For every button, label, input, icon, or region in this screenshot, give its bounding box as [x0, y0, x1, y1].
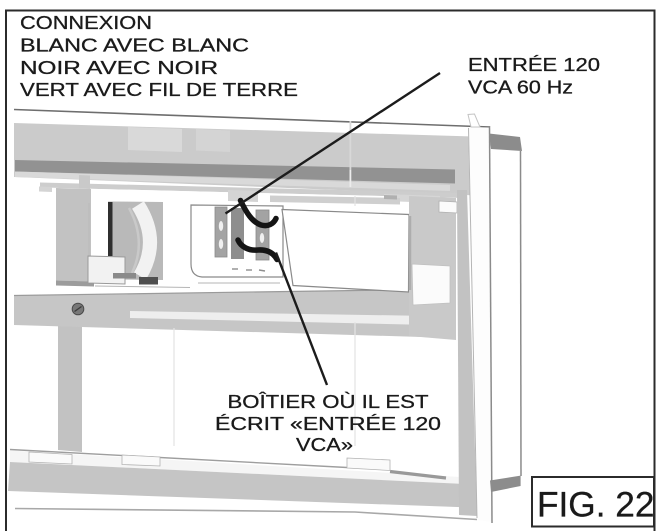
- svg-text:VERT AVEC FIL DE TERRE: VERT AVEC FIL DE TERRE: [20, 79, 298, 100]
- svg-text:FIG. 22: FIG. 22: [537, 486, 655, 525]
- svg-text:ÉCRIT «ENTRÉE 120: ÉCRIT «ENTRÉE 120: [215, 413, 441, 434]
- svg-text:ENTRÉE 120: ENTRÉE 120: [468, 54, 600, 75]
- svg-text:BLANC AVEC BLANC: BLANC AVEC BLANC: [20, 35, 249, 56]
- svg-text:NOIR AVEC NOIR: NOIR AVEC NOIR: [20, 57, 218, 78]
- svg-text:VCA»: VCA»: [296, 434, 353, 455]
- svg-text:BOÎTIER OÙ IL EST: BOÎTIER OÙ IL EST: [228, 391, 429, 412]
- svg-text:CONNEXION: CONNEXION: [20, 12, 152, 33]
- svg-text:VCA 60 Hz: VCA 60 Hz: [468, 76, 573, 97]
